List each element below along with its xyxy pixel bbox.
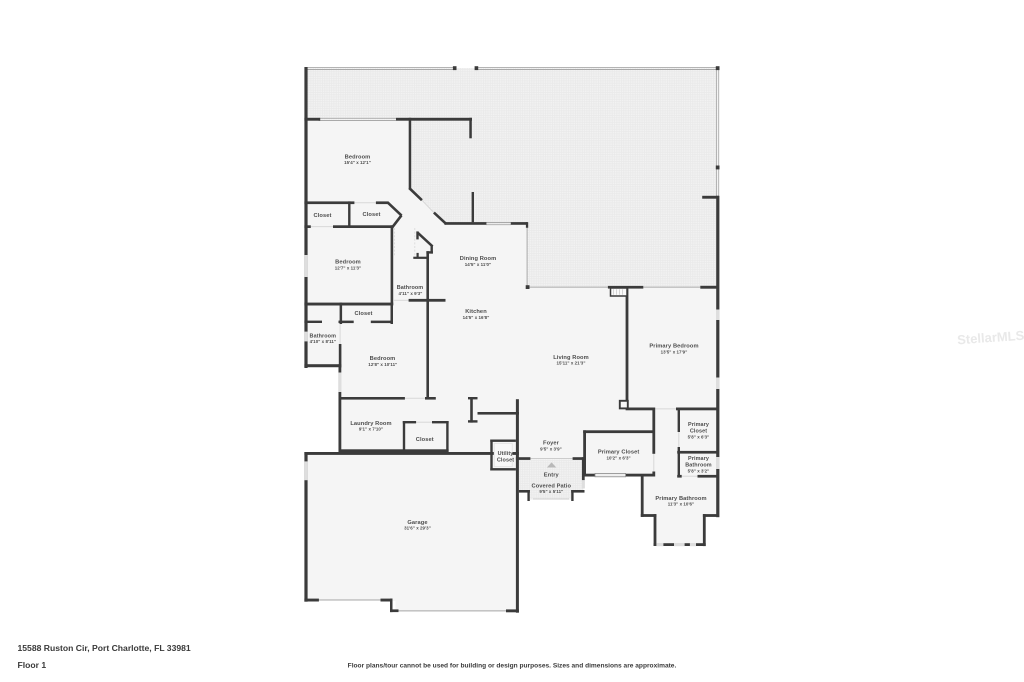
svg-text:14'5" x 11'0": 14'5" x 11'0" (465, 262, 491, 267)
svg-text:Primary: Primary (688, 422, 709, 428)
svg-text:15588 Ruston Cir, Port Charlot: 15588 Ruston Cir, Port Charlotte, FL 339… (18, 643, 191, 653)
svg-text:4'10" x 8'11": 4'10" x 8'11" (310, 339, 336, 344)
svg-text:9'5" x 5'11": 9'5" x 5'11" (539, 489, 563, 494)
svg-text:Closet: Closet (416, 437, 434, 443)
svg-text:13'5" x 17'9": 13'5" x 17'9" (661, 350, 688, 355)
svg-text:15'11" x 21'3": 15'11" x 21'3" (557, 361, 586, 366)
svg-text:12'8" x 10'11": 12'8" x 10'11" (368, 362, 397, 367)
svg-text:Floor plans/tour cannot be use: Floor plans/tour cannot be used for buil… (348, 663, 677, 670)
svg-text:Closet: Closet (355, 311, 373, 317)
svg-text:Primary Bedroom: Primary Bedroom (649, 343, 698, 349)
svg-text:Floor 1: Floor 1 (18, 660, 47, 670)
svg-text:Utility: Utility (498, 451, 514, 457)
svg-text:5'8" x 6'3": 5'8" x 6'3" (688, 435, 710, 440)
svg-text:Closet: Closet (314, 213, 332, 219)
svg-text:14'5" x 16'8": 14'5" x 16'8" (463, 315, 490, 320)
svg-text:5'8" x 3'2": 5'8" x 3'2" (688, 468, 710, 473)
svg-text:Closet: Closet (497, 458, 514, 464)
svg-text:Closet: Closet (690, 429, 707, 435)
svg-text:12'7" x 11'3": 12'7" x 11'3" (335, 265, 361, 270)
svg-text:9'1" x 7'10": 9'1" x 7'10" (359, 427, 383, 432)
svg-text:15'4" x 12'1": 15'4" x 12'1" (344, 160, 371, 165)
svg-text:Primary: Primary (688, 456, 709, 462)
svg-text:Entry: Entry (544, 473, 560, 479)
svg-text:4'11" x 9'3": 4'11" x 9'3" (399, 291, 423, 296)
svg-text:9'5" x 3'9": 9'5" x 3'9" (540, 446, 562, 451)
svg-text:11'3" x 10'6": 11'3" x 10'6" (668, 502, 694, 507)
svg-text:10'2" x 6'3": 10'2" x 6'3" (606, 455, 630, 460)
svg-text:31'6" x 29'3": 31'6" x 29'3" (404, 526, 431, 531)
svg-text:Closet: Closet (363, 212, 381, 218)
